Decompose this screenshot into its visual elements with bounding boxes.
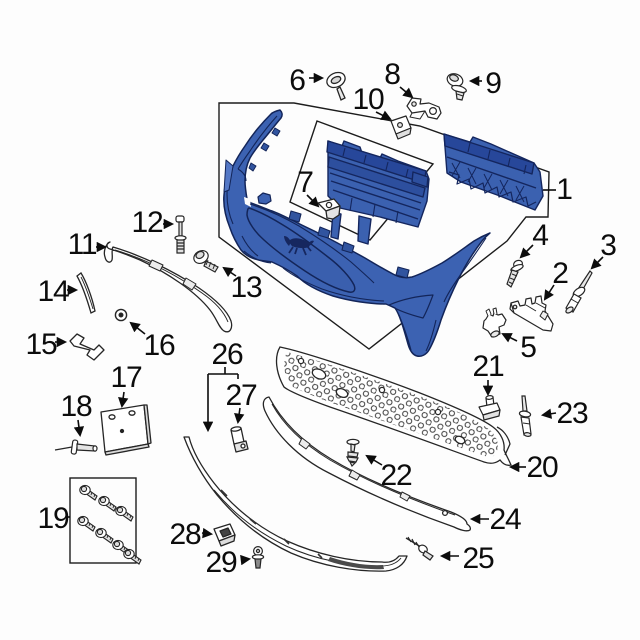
svg-text:29: 29 [206, 546, 237, 579]
svg-text:1: 1 [556, 173, 572, 206]
svg-text:12: 12 [132, 206, 163, 239]
svg-text:21: 21 [473, 350, 504, 383]
svg-text:17: 17 [111, 361, 142, 394]
svg-text:10: 10 [353, 83, 384, 116]
svg-text:26: 26 [212, 338, 243, 371]
svg-text:28: 28 [170, 518, 201, 551]
svg-text:15: 15 [26, 328, 57, 361]
svg-text:14: 14 [38, 275, 69, 308]
svg-text:22: 22 [381, 459, 412, 492]
svg-text:16: 16 [144, 329, 175, 362]
svg-text:11: 11 [68, 228, 97, 261]
svg-text:18: 18 [61, 390, 92, 423]
svg-text:24: 24 [490, 503, 521, 536]
svg-text:8: 8 [384, 58, 400, 91]
svg-text:6: 6 [289, 64, 305, 97]
svg-text:7: 7 [297, 166, 313, 199]
svg-text:23: 23 [557, 397, 588, 430]
svg-text:2: 2 [552, 257, 568, 290]
svg-text:27: 27 [226, 379, 257, 412]
svg-text:5: 5 [520, 331, 536, 364]
svg-text:4: 4 [532, 219, 548, 252]
svg-text:9: 9 [485, 67, 501, 100]
svg-text:20: 20 [527, 451, 558, 484]
svg-text:25: 25 [463, 542, 494, 575]
svg-text:19: 19 [38, 502, 69, 535]
